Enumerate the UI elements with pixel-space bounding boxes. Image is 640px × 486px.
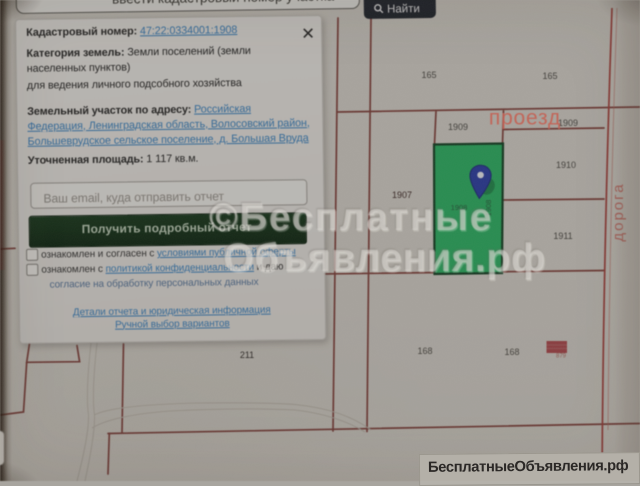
svg-text:879: 879 — [556, 354, 567, 360]
svg-text:165: 165 — [421, 70, 436, 80]
svg-text:проезд: проезд — [489, 107, 561, 130]
svg-text:168: 168 — [504, 347, 519, 357]
svg-text:дорога: дорога — [610, 182, 627, 241]
svg-text:211: 211 — [240, 350, 254, 360]
svg-text:1910: 1910 — [556, 160, 576, 170]
svg-text:1911: 1911 — [553, 231, 572, 241]
svg-text:1909: 1909 — [448, 122, 468, 132]
svg-text:168: 168 — [417, 346, 432, 356]
svg-text:165: 165 — [542, 71, 557, 81]
